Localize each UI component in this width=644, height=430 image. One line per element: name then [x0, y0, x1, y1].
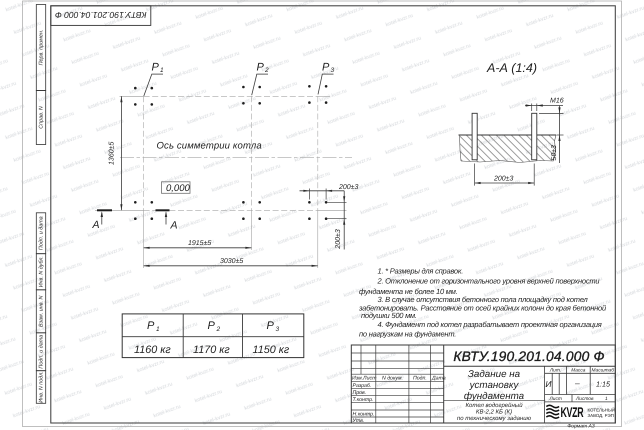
svg-text:Инв. N подл.: Инв. N подл.: [38, 371, 44, 403]
svg-text:Дата: Дата: [431, 375, 446, 381]
svg-text:Пров.: Пров.: [353, 390, 367, 396]
svg-text:Подп. и дата: Подп. и дата: [38, 335, 44, 369]
svg-text:подушки 500 мм.: подушки 500 мм.: [361, 311, 417, 320]
svg-text:1170 кг: 1170 кг: [193, 344, 230, 356]
svg-text:установку: установку: [469, 380, 520, 391]
svg-text:0,000: 0,000: [166, 183, 190, 194]
svg-text:Подп.: Подп.: [413, 375, 427, 381]
svg-text:–: –: [574, 378, 580, 388]
svg-text:1. * Размеры для справок.: 1. * Размеры для справок.: [378, 266, 464, 275]
svg-text:1160 кг: 1160 кг: [134, 344, 171, 356]
svg-text:KVZR: KVZR: [561, 404, 584, 420]
svg-text:по техническому заданию: по техническому заданию: [457, 415, 532, 422]
svg-text:Подп. и дата: Подп. и дата: [38, 216, 44, 250]
svg-text:А: А: [92, 219, 100, 231]
svg-text:1:15: 1:15: [596, 380, 611, 389]
svg-text:Разраб.: Разраб.: [353, 383, 372, 389]
svg-text:1915±5: 1915±5: [188, 240, 211, 247]
svg-text:Утв.: Утв.: [353, 418, 365, 424]
svg-text:Р: Р: [257, 62, 265, 74]
svg-text:50±3: 50±3: [551, 145, 558, 161]
svg-text:Н.контр.: Н.контр.: [353, 412, 375, 418]
svg-text:Листов: Листов: [575, 396, 594, 402]
svg-text:1360±5: 1360±5: [109, 142, 116, 165]
svg-text:200±3: 200±3: [493, 176, 514, 183]
svg-text:2: 2: [264, 67, 269, 74]
svg-text:1: 1: [160, 67, 164, 74]
svg-text:Изм.Лист: Изм.Лист: [352, 375, 377, 381]
svg-text:И: И: [545, 379, 552, 389]
svg-text:КОТЕЛЬНЫЙ: КОТЕЛЬНЫЙ: [588, 408, 616, 413]
svg-text:КВ-2,2 КБ (К): КВ-2,2 КБ (К): [476, 409, 512, 416]
svg-text:200±3: 200±3: [338, 184, 359, 191]
svg-text:Справ. N: Справ. N: [38, 106, 44, 129]
svg-text:1150 кг: 1150 кг: [253, 344, 290, 356]
svg-text:2. Отклонение от горизонтально: 2. Отклонение от горизонтального уровня …: [377, 277, 601, 286]
svg-text:Т.контр.: Т.контр.: [353, 397, 374, 403]
svg-text:Лист: Лист: [549, 396, 562, 402]
svg-text:Масштаб: Масштаб: [591, 368, 614, 374]
svg-text:Р: Р: [147, 320, 155, 332]
svg-text:Ось симметрии котла: Ось симметрии котла: [157, 140, 262, 151]
svg-text:Взам. инв. N: Взам. инв. N: [38, 295, 44, 327]
svg-text:М16: М16: [550, 98, 564, 105]
svg-text:Перв. примен.: Перв. примен.: [38, 30, 44, 66]
svg-text:Котел водогрейный: Котел водогрейный: [465, 402, 523, 409]
svg-text:3: 3: [276, 326, 280, 333]
svg-text:А: А: [170, 220, 178, 232]
svg-text:Р: Р: [322, 62, 330, 74]
svg-text:3: 3: [331, 67, 335, 74]
svg-text:2: 2: [216, 326, 221, 333]
svg-text:3030±5: 3030±5: [220, 258, 243, 265]
svg-text:Лит.: Лит.: [549, 368, 561, 374]
svg-text:1: 1: [156, 326, 160, 333]
svg-text:Р: Р: [267, 320, 275, 332]
svg-text:КВТУ.190.201.04.000 Ф: КВТУ.190.201.04.000 Ф: [55, 10, 147, 20]
svg-text:Формат А3: Формат А3: [567, 424, 595, 430]
svg-text:1: 1: [605, 396, 608, 402]
svg-text:N докум.: N докум.: [382, 375, 403, 381]
svg-text:фундамента: фундамента: [464, 391, 525, 402]
svg-text:Р: Р: [208, 320, 216, 332]
svg-text:Задание на: Задание на: [468, 369, 521, 380]
svg-text:Р: Р: [152, 62, 160, 74]
svg-text:ЗАВОД, РЭП: ЗАВОД, РЭП: [588, 413, 614, 418]
svg-text:Инв. N дубл.: Инв. N дубл.: [38, 256, 44, 287]
svg-text:Масса: Масса: [571, 368, 586, 374]
svg-text:по нагрузкам на фундамент.: по нагрузкам на фундамент.: [359, 329, 456, 338]
svg-text:200±3: 200±3: [335, 229, 342, 250]
svg-text:КВТУ.190.201.04.000 Ф: КВТУ.190.201.04.000 Ф: [453, 349, 604, 364]
svg-text:А-А (1:4): А-А (1:4): [486, 61, 537, 75]
svg-text:4. Фундамент под котел разраба: 4. Фундамент под котел разрабатывает про…: [378, 320, 602, 329]
